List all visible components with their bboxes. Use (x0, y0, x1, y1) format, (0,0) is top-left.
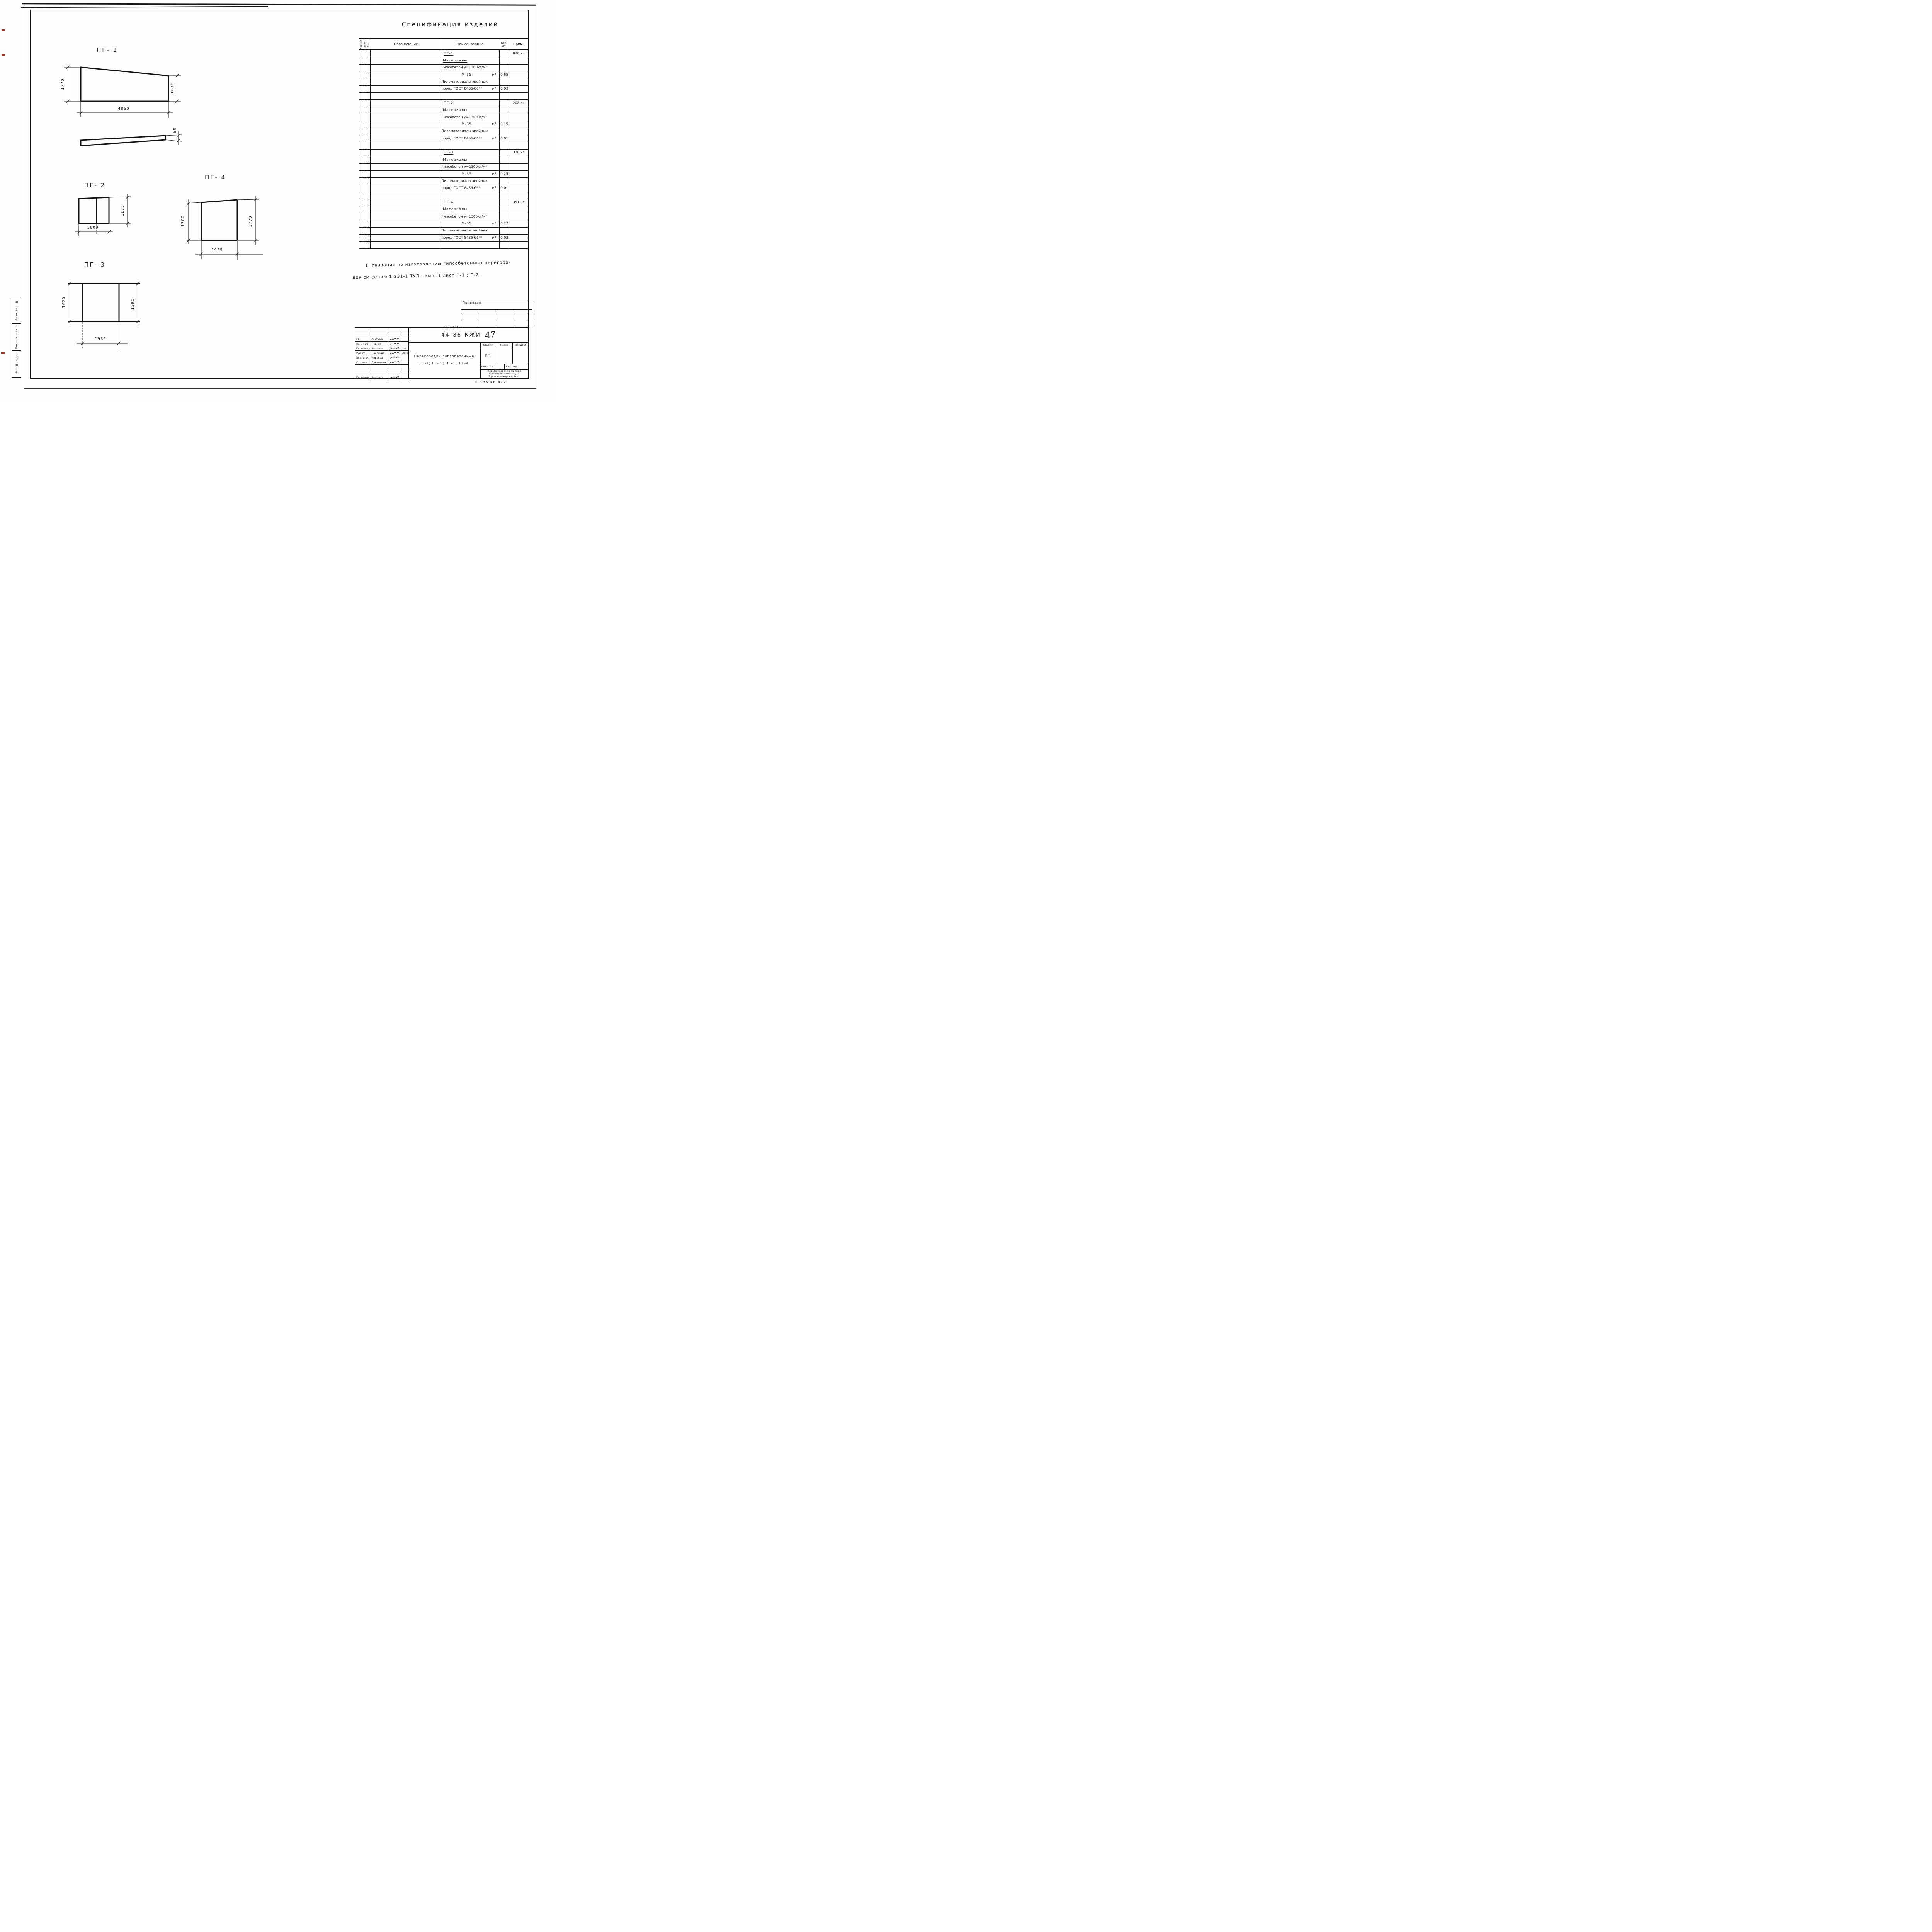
spec-cell (500, 128, 509, 135)
dim-pg3-left: 1620 (62, 294, 66, 311)
spec-col-format: Формат (359, 39, 363, 49)
spec-cell (367, 65, 371, 71)
spec-cell (367, 50, 371, 57)
scale-value (513, 348, 529, 364)
spec-cell (363, 135, 367, 142)
spec-cell (363, 50, 367, 57)
spec-cell (363, 107, 367, 114)
dim-pg1-left: 1770 (61, 76, 65, 93)
spec-row: Материалы (359, 107, 528, 114)
spec-cell: М-35м³ (440, 121, 500, 128)
stamp-cell (388, 337, 401, 341)
strip-label: Взам. инв. № (15, 300, 18, 320)
spec-cell (371, 128, 440, 135)
stamp-cell: Дуненкова (371, 360, 388, 364)
sheet-number-handwritten: 47 (484, 330, 496, 341)
spec-cell (371, 241, 440, 248)
spec-item-unit: м³ (492, 236, 498, 240)
spec-cell (371, 171, 440, 177)
spec-cell: 0,25 (500, 171, 509, 177)
org-line3: Тульскгражданпроект (480, 375, 529, 378)
spec-cell: Материалы (440, 206, 500, 213)
strip-cell: Инв. № подл. (12, 351, 21, 377)
spec-item-name: М-35 (441, 172, 492, 176)
signature-mark (389, 351, 400, 355)
spec-cell (359, 71, 363, 78)
stamp-cell (388, 369, 401, 374)
spec-row: М-35м³0,25 (359, 171, 528, 178)
stamp-cell: Киреева (371, 355, 388, 360)
spec-cell (500, 78, 509, 85)
red-edge-mark (2, 29, 5, 31)
spec-cell (509, 57, 528, 64)
spec-cell (509, 156, 528, 163)
signature-mark (389, 347, 400, 350)
spec-cell (367, 178, 371, 184)
spec-row (359, 192, 528, 199)
spec-cell (363, 171, 367, 177)
spec-cell (359, 78, 363, 85)
spec-item-name: Пиломатериалы хвойных (441, 80, 492, 84)
spec-cell: пород ГОСТ 8486-66**м³ (440, 235, 500, 241)
spec-cell (367, 156, 371, 163)
dim-pg2-bottom: 1600 (84, 226, 101, 230)
spec-cell (359, 206, 363, 213)
stamp-cell: Гл. контр. (355, 374, 371, 381)
spec-item-unit: м³ (492, 73, 498, 77)
spec-item-name: пород ГОСТ 8486-66** (441, 236, 492, 240)
spec-cell (367, 192, 371, 199)
stage-label: Стадия (480, 342, 496, 348)
spec-cell (371, 156, 440, 163)
stage-grid-values: РП (480, 348, 529, 364)
org-line1: Новомосковский филиал (480, 370, 529, 372)
spec-cell (359, 171, 363, 177)
spec-cell (371, 65, 440, 71)
spec-cell: 0,02 (500, 235, 509, 241)
spec-cell (367, 171, 371, 177)
stamp-cell: Ст. техн. (355, 360, 371, 364)
drawing-title-line2: ПГ-1; ПГ-2 ; ПГ-3 , ПГ-4 (408, 362, 480, 366)
spec-col-qty: Кол.шт. (499, 39, 509, 49)
spec-item-name: М-35 (441, 222, 492, 226)
stamp-cell (388, 360, 401, 364)
spec-cell (509, 135, 528, 142)
stamp-row (355, 332, 408, 337)
signature-mark (389, 342, 400, 346)
spec-cell (359, 65, 363, 71)
spec-cell (509, 107, 528, 114)
spec-cell (363, 228, 367, 234)
signature-mark (389, 356, 400, 360)
spec-cell (367, 78, 371, 85)
stamp-row: Вед. инж.Киреева (355, 355, 408, 360)
spec-cell (371, 71, 440, 78)
spec-row: пород ГОСТ 8486-66**м³0,03 (359, 86, 528, 93)
spec-cell (367, 199, 371, 206)
spec-title: Спецификация изделий (373, 21, 527, 28)
spec-cell (367, 135, 371, 142)
spec-cell: 0,65 (500, 71, 509, 78)
spec-cell (500, 241, 509, 248)
stamp-cell (371, 365, 388, 369)
spec-row: Пиломатериалы хвойных (359, 178, 528, 185)
drawing-title-line1: Перегородки гипсобетонные (408, 355, 480, 359)
spec-cell (371, 206, 440, 213)
spec-cell (367, 121, 371, 128)
spec-row: Гипсобетон γ=1300кг/м³ (359, 65, 528, 71)
signature-mark (389, 361, 400, 364)
spec-col-name: Наименование (441, 39, 499, 49)
spec-cell: пород ГОСТ 8486-66**м³ (440, 135, 500, 142)
stamp-cell (401, 355, 408, 360)
spec-cell (500, 65, 509, 71)
spec-cell (371, 78, 440, 85)
spec-cell (440, 93, 500, 99)
spec-row: ПГ-3338 кг (359, 150, 528, 156)
spec-cell (371, 185, 440, 192)
spec-cell (367, 100, 371, 106)
spec-cell (363, 100, 367, 106)
spec-col-designation: Обозначение (371, 39, 441, 49)
spec-cell (371, 164, 440, 170)
stamp-row (355, 369, 408, 374)
org-line2: проектного института (480, 372, 529, 375)
spec-cell (363, 65, 367, 71)
spec-cell: ПГ-2 (440, 100, 500, 106)
stamp-cell: Гл. констр. (355, 346, 371, 350)
spec-cell (367, 206, 371, 213)
spec-cell: ПГ-1 (440, 50, 500, 57)
stamp-row: Гл. констр.Улитина— (355, 346, 408, 351)
spec-row: пород ГОСТ 8486-66*м³0,01 (359, 185, 528, 192)
spec-cell: ПГ-3 (440, 150, 500, 156)
spec-cell (363, 241, 367, 248)
stage-value: РП (480, 348, 496, 364)
spec-cell (359, 185, 363, 192)
spec-cell (500, 100, 509, 106)
spec-cell (359, 192, 363, 199)
spec-cell (371, 178, 440, 184)
stamp-row: ГАПУлитина (355, 337, 408, 342)
spec-cell (359, 150, 363, 156)
drawing-title-cell: Перегородки гипсобетонные ПГ-1; ПГ-2 ; П… (408, 342, 481, 378)
spec-cell: Материалы (440, 57, 500, 64)
spec-cell (371, 100, 440, 106)
spec-row: Материалы (359, 156, 528, 163)
spec-cell (509, 220, 528, 227)
spec-cell (363, 114, 367, 121)
spec-cell: 0,03 (500, 86, 509, 92)
spec-cell (440, 241, 500, 248)
title-block: ГАПУлитинаНач. КСОЛевинаГл. констр.Улити… (355, 327, 529, 378)
spec-item-name: Гипсобетон γ=1300кг/м³ (441, 165, 492, 169)
format-note: Формат А-2 (475, 380, 507, 384)
spec-cell: 351 кг (509, 199, 528, 206)
spec-item-name: Гипсобетон γ=1300кг/м³ (441, 116, 492, 119)
stamp-cell (401, 369, 408, 374)
spec-cell (363, 199, 367, 206)
scale-label: Масштаб (513, 342, 529, 348)
spec-cell: Гипсобетон γ=1300кг/м³ (440, 164, 500, 170)
left-stamp-strip: Взам. инв. № Подпись и дата Инв. № подл. (12, 297, 21, 378)
spec-cell (359, 135, 363, 142)
stamp-cell (388, 328, 401, 332)
spec-cell (359, 156, 363, 163)
stamp-cell (388, 374, 401, 381)
spec-cell (363, 213, 367, 220)
stamp-cell (401, 328, 408, 332)
red-edge-mark (2, 54, 5, 56)
spec-cell (359, 107, 363, 114)
sheet-label: Лист 46 (480, 364, 505, 369)
spec-cell (359, 235, 363, 241)
strip-label: Подпись и дата (15, 325, 18, 349)
spec-item-name: пород ГОСТ 8486-66** (441, 137, 492, 141)
panel-label-pg2: ПГ- 2 (84, 182, 119, 189)
spec-cell: Пиломатериалы хвойных (440, 178, 500, 184)
spec-row: ПГ-2208 кг (359, 100, 528, 107)
spec-cell (363, 235, 367, 241)
stamp-cell (355, 369, 371, 374)
spec-cell (367, 228, 371, 234)
spec-cell (371, 114, 440, 121)
spec-cell (359, 228, 363, 234)
spec-item-name: пород ГОСТ 8486-66** (441, 87, 492, 91)
stamp-cell (371, 332, 388, 337)
spec-cell (367, 114, 371, 121)
stamp-cell (388, 355, 401, 360)
spec-cell (509, 121, 528, 128)
sheets-label: Листов (505, 364, 529, 369)
spec-item-name: Материалы (441, 207, 492, 211)
stamp-cell (355, 365, 371, 369)
spec-row: ПГ-4351 кг (359, 199, 528, 206)
spec-item-name: Материалы (441, 108, 492, 112)
spec-item-name: пород ГОСТ 8486-66* (441, 186, 492, 190)
spec-row (359, 241, 528, 248)
spec-item-unit: м³ (492, 186, 498, 190)
spec-cell (509, 128, 528, 135)
spec-cell (367, 107, 371, 114)
dim-pg1-bottom: 4860 (115, 107, 132, 111)
spec-cell (363, 220, 367, 227)
sheet-row: Лист 46 Листов (480, 364, 529, 370)
spec-cell (509, 164, 528, 170)
stamp-cell: Рук. гр. (355, 351, 371, 355)
spec-cell (509, 213, 528, 220)
spec-cell (363, 150, 367, 156)
mass-value (496, 348, 512, 364)
stamp-row: Гл. контр.Улитина (355, 374, 408, 381)
stage-grid-header: Стадия Масса Масштаб (480, 342, 529, 348)
dim-pg2-right: 1170 (121, 202, 125, 219)
mass-label: Масса (496, 342, 512, 348)
spec-cell: Пиломатериалы хвойных (440, 228, 500, 234)
spec-cell (371, 192, 440, 199)
spec-item-unit: м³ (492, 222, 498, 226)
spec-cell (359, 178, 363, 184)
spec-cell: 0,15 (500, 121, 509, 128)
spec-cell (363, 156, 367, 163)
spec-cell (500, 107, 509, 114)
spec-cell (359, 213, 363, 220)
spec-cell (500, 228, 509, 234)
stamp-row (355, 328, 408, 332)
dim-pg4-left: 1700 (181, 213, 185, 230)
spec-cell (359, 93, 363, 99)
strip-cell: Подпись и дата (12, 324, 21, 350)
spec-row: Пиломатериалы хвойных (359, 78, 528, 85)
signature-mark (389, 376, 400, 379)
spec-cell: ПГ-4 (440, 199, 500, 206)
dim-pg3-right: 1590 (131, 296, 135, 313)
spec-cell (363, 142, 367, 149)
spec-item-unit: м³ (492, 122, 498, 126)
stamp-cell (355, 328, 371, 332)
stamp-cell: 10.86 (401, 351, 408, 355)
spec-cell (500, 142, 509, 149)
spec-cell (359, 241, 363, 248)
spec-row: М-35м³0,65 (359, 71, 528, 78)
spec-cell (359, 164, 363, 170)
spec-item-name: Гипсобетон γ=1300кг/м³ (441, 215, 492, 219)
spec-cell (367, 93, 371, 99)
spec-cell: М-35м³ (440, 71, 500, 78)
doc-number-cell: 44-86-КЖИ 47 (408, 328, 529, 343)
spec-cell (367, 57, 371, 64)
spec-cell (363, 206, 367, 213)
spec-cell (509, 78, 528, 85)
spec-cell (359, 142, 363, 149)
panel-label-pg3: ПГ- 3 (84, 261, 119, 268)
stamp-cell (401, 332, 408, 337)
spec-col-zone-label: Зона (364, 41, 366, 47)
stamp-cell (401, 360, 408, 364)
stamp-cell: ГАП (355, 337, 371, 341)
spec-cell: Материалы (440, 156, 500, 163)
spec-cell (500, 192, 509, 199)
spec-row: М-35м³0,15 (359, 121, 528, 128)
spec-cell (371, 220, 440, 227)
spec-cell: 338 кг (509, 150, 528, 156)
spec-cell (500, 178, 509, 184)
stamp-cell (401, 342, 408, 346)
spec-cell (500, 114, 509, 121)
dim-pg4-right: 1770 (248, 213, 253, 230)
stamp-cell (371, 369, 388, 374)
attach-grid (461, 310, 532, 325)
stamp-cell (371, 328, 388, 332)
spec-item-unit: м³ (492, 172, 498, 176)
spec-cell (359, 50, 363, 57)
attach-title: Привязан (461, 300, 532, 310)
spec-item-name: Пиломатериалы хвойных (441, 229, 492, 233)
spec-cell: М-35м³ (440, 171, 500, 177)
spec-col-format-label: Формат (360, 39, 362, 49)
spec-row (359, 93, 528, 100)
spec-cell: 878 кг (509, 50, 528, 57)
spec-cell (363, 185, 367, 192)
spec-cell: 0,27 (500, 220, 509, 227)
spec-cell (509, 65, 528, 71)
spec-cell (371, 142, 440, 149)
title-block-signatures: ГАПУлитинаНач. КСОЛевинаГл. констр.Улити… (355, 328, 409, 378)
stamp-cell: Полосина (371, 351, 388, 355)
spec-cell (363, 128, 367, 135)
stamp-cell (388, 365, 401, 369)
spec-cell (367, 150, 371, 156)
spec-row: Пиломатериалы хвойных (359, 228, 528, 235)
spec-cell (363, 178, 367, 184)
spec-row: Гипсобетон γ=1300кг/м³ (359, 213, 528, 220)
spec-cell (509, 241, 528, 248)
dim-pg1-right: 1630 (170, 80, 175, 97)
spec-cell (359, 121, 363, 128)
spec-row: пород ГОСТ 8486-66**м³0,01 (359, 135, 528, 142)
spec-row: ПГ-1878 кг (359, 50, 528, 57)
spec-cell (440, 192, 500, 199)
strip-cell: Взам. инв. № (12, 297, 21, 324)
spec-item-name: Материалы (441, 59, 492, 63)
spec-row: Материалы (359, 206, 528, 213)
spec-cell (509, 93, 528, 99)
dim-pg4-bottom: 1935 (209, 248, 226, 253)
red-edge-mark (1, 352, 5, 354)
stamp-cell: Нач. КСО (355, 342, 371, 346)
spec-cell (371, 135, 440, 142)
spec-item-unit: м³ (492, 137, 498, 141)
spec-cell (509, 114, 528, 121)
spec-cell (371, 93, 440, 99)
strip-label: Инв. № подл. (15, 354, 18, 374)
spec-cell (509, 142, 528, 149)
spec-cell (371, 228, 440, 234)
spec-row (359, 142, 528, 149)
dim-pg3-bottom: 1935 (92, 337, 109, 342)
spec-row: Пиломатериалы хвойных (359, 128, 528, 135)
spec-cell (359, 57, 363, 64)
stamp-cell (388, 351, 401, 355)
stamp-cell (388, 346, 401, 350)
stamp-cell (401, 374, 408, 381)
spec-cell (367, 142, 371, 149)
spec-item-name: Пиломатериалы хвойных (441, 179, 492, 183)
organization-cell: Новомосковский филиал проектного институ… (480, 370, 529, 378)
spec-cell (359, 86, 363, 92)
spec-cell (363, 192, 367, 199)
spec-cell: 208 кг (509, 100, 528, 106)
spec-cell (500, 199, 509, 206)
spec-table-header: Формат Зона Поз. Обозначение Наименовани… (359, 39, 528, 50)
spec-cell (371, 235, 440, 241)
spec-table-body: ПГ-1878 кгМатериалыГипсобетон γ=1300кг/м… (359, 50, 528, 249)
spec-col-qty-label: Кол.шт. (501, 41, 507, 48)
spec-cell (363, 86, 367, 92)
spec-item-name: ПГ-4 (441, 201, 492, 204)
spec-row: Материалы (359, 57, 528, 64)
spec-cell (371, 86, 440, 92)
stamp-cell: Вед. инж. (355, 355, 371, 360)
panel-label-pg1: ПГ- 1 (97, 46, 131, 53)
spec-cell: Гипсобетон γ=1300кг/м³ (440, 213, 500, 220)
stamp-row: Ст. техн.Дуненкова (355, 360, 408, 365)
stamp-cell: — (401, 346, 408, 350)
spec-cell (363, 164, 367, 170)
spec-cell (509, 171, 528, 177)
spec-cell (363, 78, 367, 85)
spec-cell (509, 206, 528, 213)
